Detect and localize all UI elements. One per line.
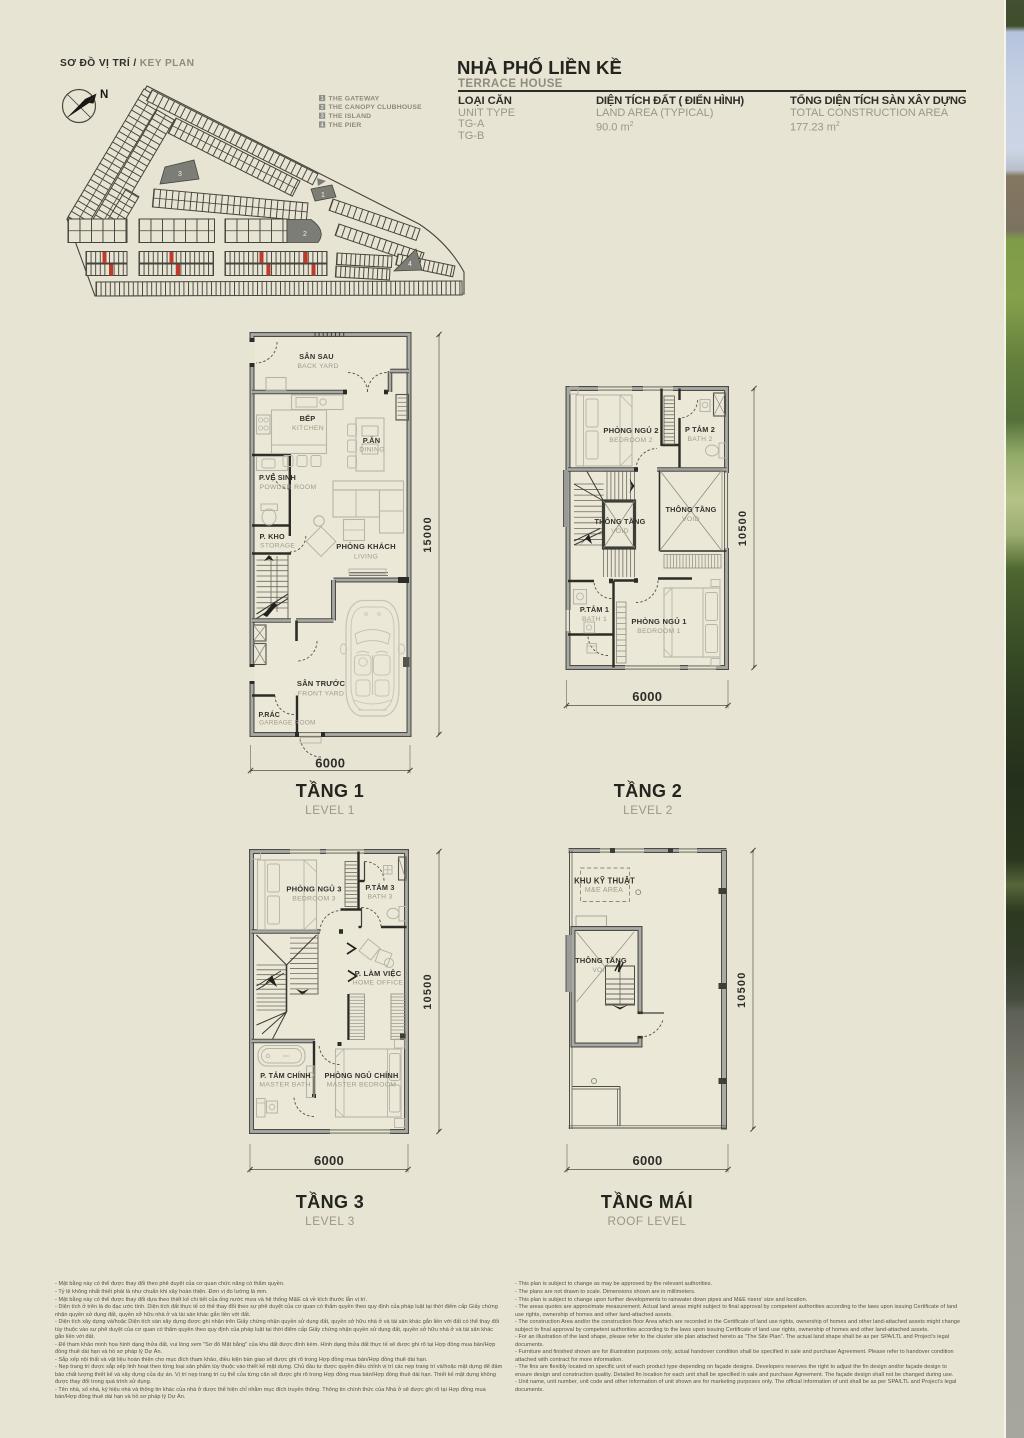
svg-text:3: 3	[320, 114, 323, 120]
svg-text:VOID: VOID	[611, 528, 629, 535]
svg-text:PHÒNG NGỦ 1: PHÒNG NGỦ 1	[631, 617, 687, 626]
svg-text:BATH 3: BATH 3	[367, 894, 392, 901]
svg-text:10500: 10500	[737, 510, 749, 547]
svg-text:THÔNG TẦNG: THÔNG TẦNG	[665, 504, 716, 514]
svg-text:STORAGE: STORAGE	[260, 543, 295, 550]
svg-text:PHÒNG NGỦ 3: PHÒNG NGỦ 3	[286, 885, 341, 894]
svg-text:LIVING: LIVING	[354, 554, 378, 561]
svg-text:6000: 6000	[315, 756, 345, 771]
svg-text:BẾP: BẾP	[300, 413, 316, 423]
svg-text:2: 2	[303, 231, 307, 238]
svg-text:10500: 10500	[422, 973, 434, 1010]
svg-text:PHÒNG NGỦ CHÍNH: PHÒNG NGỦ CHÍNH	[324, 1071, 398, 1080]
svg-text:KHU KỸ THUẬT: KHU KỸ THUẬT	[574, 877, 635, 886]
svg-text:BACK YARD: BACK YARD	[297, 363, 338, 370]
svg-text:6000: 6000	[632, 689, 662, 704]
svg-text:POWDER ROOM: POWDER ROOM	[260, 484, 317, 491]
svg-text:1: 1	[321, 192, 325, 199]
svg-text:THE PIER: THE PIER	[329, 122, 362, 129]
svg-text:BEDROOM 3: BEDROOM 3	[292, 896, 336, 903]
svg-text:FRONT YARD: FRONT YARD	[298, 691, 344, 698]
svg-text:6000: 6000	[314, 1153, 344, 1168]
svg-text:KITCHEN: KITCHEN	[292, 425, 324, 432]
svg-text:BATH 1: BATH 1	[582, 616, 607, 623]
svg-text:VOID: VOID	[682, 516, 700, 523]
svg-text:N: N	[100, 89, 108, 101]
svg-text:PHÒNG NGỦ 2: PHÒNG NGỦ 2	[603, 426, 658, 435]
svg-text:MASTER BEDROOM: MASTER BEDROOM	[327, 1082, 397, 1089]
svg-text:PHÒNG KHÁCH: PHÒNG KHÁCH	[336, 542, 396, 551]
svg-text:P.VỆ SINH: P.VỆ SINH	[259, 473, 296, 482]
svg-text:P TẮM 2: P TẮM 2	[685, 425, 715, 434]
svg-text:GARBAGE ROOM: GARBAGE ROOM	[259, 720, 316, 727]
svg-text:P. KHO: P. KHO	[260, 532, 286, 541]
svg-text:P. TẮM CHÍNH: P. TẮM CHÍNH	[260, 1071, 311, 1080]
svg-text:P.ĂN: P.ĂN	[363, 436, 381, 445]
svg-text:HOME OFFICE: HOME OFFICE	[353, 980, 404, 987]
svg-text:BEDROOM 2: BEDROOM 2	[609, 437, 653, 444]
svg-text:P.RÁC: P.RÁC	[259, 710, 280, 719]
svg-text:M&E AREA: M&E AREA	[585, 887, 623, 894]
svg-text:P. LÀM VIỆC: P. LÀM VIỆC	[355, 969, 402, 978]
svg-text:4: 4	[408, 261, 412, 268]
svg-text:6000: 6000	[632, 1153, 662, 1168]
svg-text:SÂN TRƯỚC: SÂN TRƯỚC	[297, 679, 346, 688]
svg-text:2: 2	[320, 105, 323, 111]
svg-text:15000: 15000	[422, 516, 434, 553]
svg-text:P.TẮM 1: P.TẮM 1	[580, 605, 609, 614]
svg-text:MASTER BATH: MASTER BATH	[259, 1082, 310, 1089]
svg-text:DINING: DINING	[359, 447, 385, 454]
svg-text:THE GATEWAY: THE GATEWAY	[329, 95, 380, 102]
svg-text:10500: 10500	[736, 971, 748, 1008]
svg-text:SÂN SAU: SÂN SAU	[299, 352, 334, 361]
svg-text:3: 3	[178, 171, 182, 178]
svg-text:THE CANOPY CLUBHOUSE: THE CANOPY CLUBHOUSE	[329, 104, 423, 111]
svg-text:P.TẮM 3: P.TẮM 3	[365, 883, 394, 892]
svg-text:BEDROOM 1: BEDROOM 1	[637, 628, 681, 635]
svg-text:1: 1	[320, 96, 323, 102]
svg-text:THE ISLAND: THE ISLAND	[329, 113, 372, 120]
svg-text:BATH 2: BATH 2	[687, 436, 712, 443]
svg-text:THÔNG TẦNG: THÔNG TẦNG	[594, 516, 645, 526]
